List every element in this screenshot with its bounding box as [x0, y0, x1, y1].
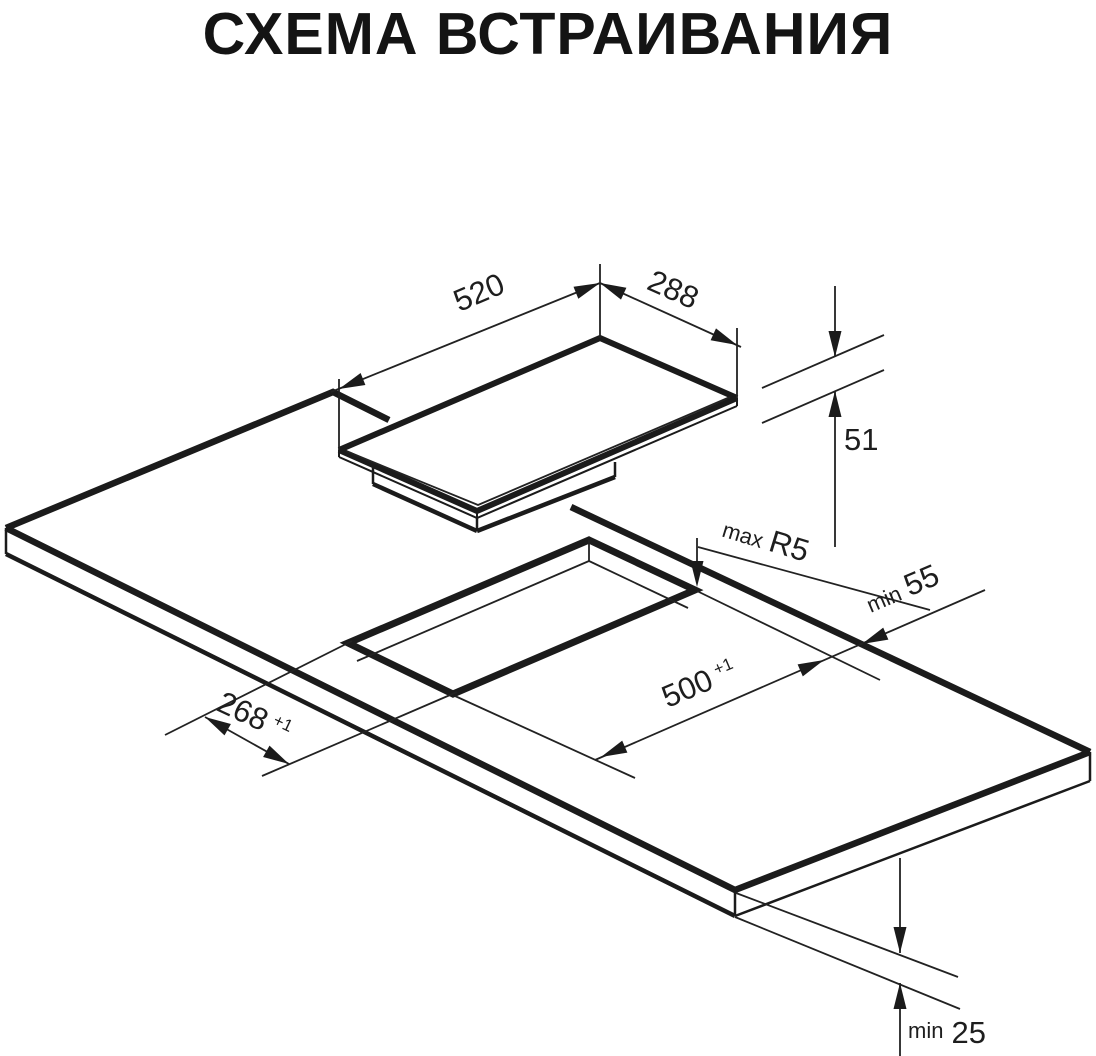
dim-288-arrow-right	[711, 328, 737, 345]
dim-268-arrow-right	[263, 746, 289, 764]
installation-diagram: СХЕМА ВСТРАИВАНИЯ	[0, 0, 1096, 1056]
dim-r5-label: maxR5	[719, 509, 814, 568]
dim-520-label: 520	[448, 266, 509, 318]
dim-288-label: 288	[643, 263, 704, 316]
dim-520-arrow-right	[574, 283, 601, 299]
dim-51-arrow-down	[829, 331, 842, 357]
dim-51-ext-top	[762, 335, 884, 388]
dim-25-arrow-down	[894, 927, 907, 953]
dim-51-label: 51	[844, 422, 878, 457]
dim-min55-label: min55	[860, 557, 944, 619]
dim-min55-arrow	[862, 628, 888, 644]
dim-51-ext-bottom	[762, 370, 884, 423]
dim-520-arrow-left	[339, 373, 365, 389]
dimension-51: 51	[762, 286, 884, 547]
dim-51-arrow-up	[829, 391, 842, 417]
dim-25-ext-top	[736, 893, 958, 977]
dim-25-label: min25	[908, 1015, 986, 1050]
dimension-288: 288	[600, 263, 741, 347]
page-title: СХЕМА ВСТРАИВАНИЯ	[203, 1, 894, 67]
installation-scheme-page: СХЕМА ВСТРАИВАНИЯ	[0, 0, 1096, 1056]
dim-288-arrow-left	[600, 283, 626, 300]
dim-25-ext-bottom	[735, 917, 960, 1009]
